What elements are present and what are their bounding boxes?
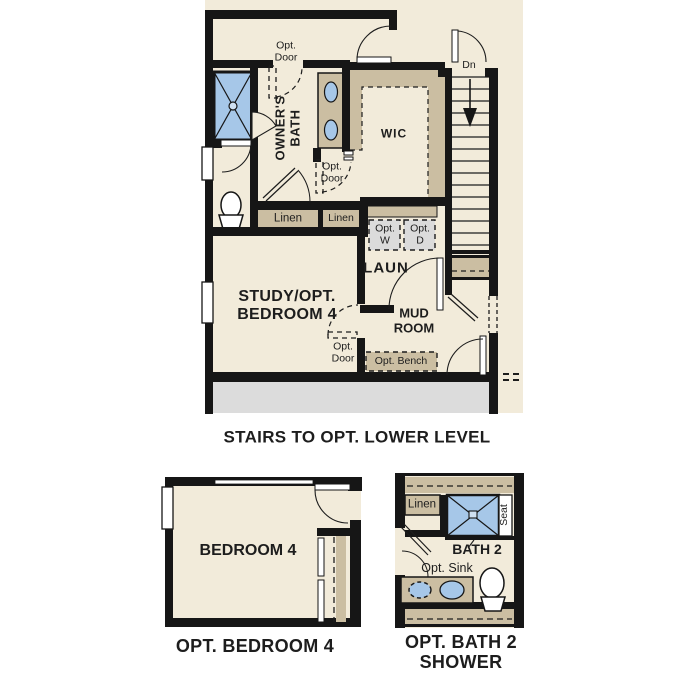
bedroom4-plan bbox=[162, 477, 362, 627]
bedroom4-floor bbox=[165, 477, 361, 627]
bath2-linen-closet bbox=[405, 495, 440, 515]
window bbox=[202, 147, 213, 180]
floorplan-page: Opt. Door Dn OWNER'S BATH WIC Linen Line… bbox=[0, 0, 687, 687]
owners-toilet-icon bbox=[219, 192, 243, 229]
window bbox=[162, 487, 173, 529]
opt-bench-box bbox=[366, 352, 437, 371]
bath2-plan bbox=[395, 473, 524, 628]
linen-closet-left bbox=[257, 209, 319, 229]
laundry-shelf bbox=[367, 206, 437, 217]
owners-shower-icon bbox=[214, 72, 252, 140]
stair-landing-shelf bbox=[452, 255, 489, 280]
bath2-shower-icon bbox=[447, 495, 499, 536]
opt-sink-icon bbox=[409, 582, 431, 598]
main-floor-plan bbox=[202, 0, 523, 414]
window bbox=[215, 480, 313, 484]
bath2-vanity-icon bbox=[401, 577, 473, 603]
linen-closet-right bbox=[322, 209, 360, 229]
sink-icon bbox=[440, 581, 464, 599]
owners-vanity-icon bbox=[318, 73, 344, 148]
opt-dryer-box bbox=[404, 220, 435, 250]
window bbox=[202, 282, 213, 323]
floorplan-drawing bbox=[0, 0, 687, 687]
opening-marker bbox=[344, 151, 353, 160]
bath2-toilet-icon bbox=[480, 568, 505, 611]
floor-patch bbox=[497, 382, 523, 413]
shower-seat bbox=[499, 495, 512, 536]
opt-washer-box bbox=[369, 220, 400, 250]
stair-break bbox=[452, 250, 489, 254]
dashed-wall-opening bbox=[489, 296, 498, 333]
porch-strip bbox=[213, 382, 489, 413]
